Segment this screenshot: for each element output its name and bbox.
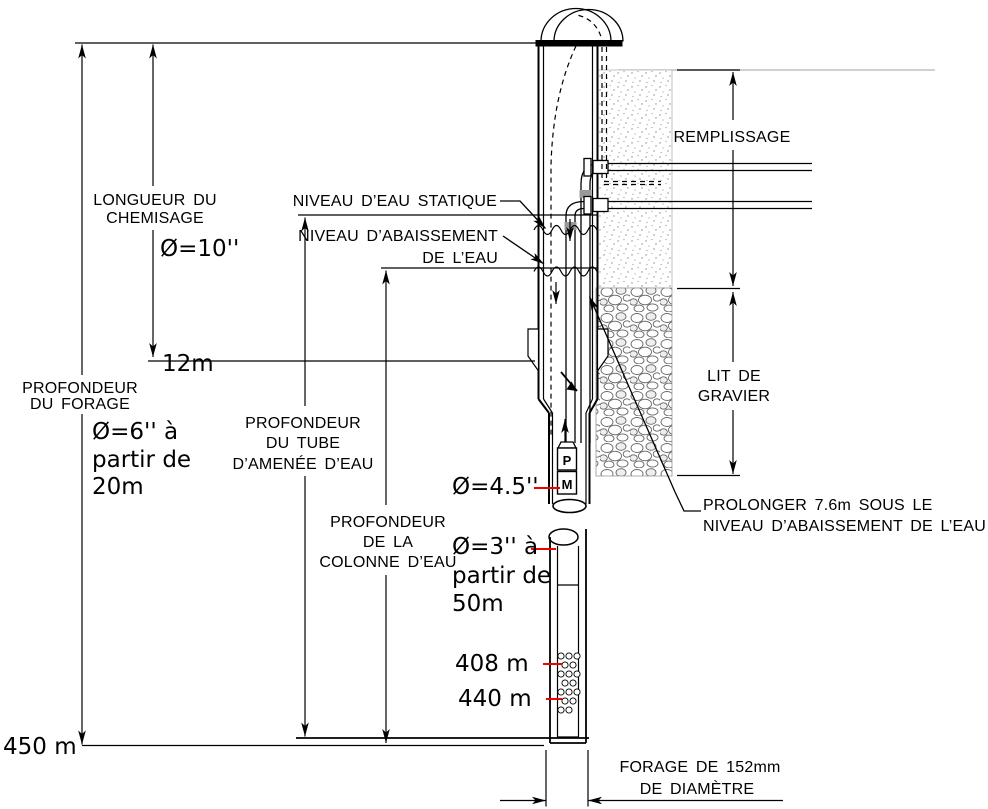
pipe-coupling bbox=[593, 161, 608, 174]
label-remplissage: REMPLISSAGE bbox=[674, 129, 791, 146]
label-profondeur-colonne-3: COLONNE D’EAU bbox=[319, 554, 456, 571]
column-pipe-mouth bbox=[549, 529, 578, 545]
backfill-region bbox=[598, 70, 672, 288]
ground-surface bbox=[75, 43, 935, 70]
centralizer-left bbox=[528, 329, 539, 371]
well-diagram: P M bbox=[0, 0, 988, 809]
note-pump-casing-diameter: Ø=4.5'' bbox=[452, 474, 539, 500]
label-forage-diametre-1: FORAGE DE 152mm bbox=[619, 759, 780, 776]
dimension-lines bbox=[82, 45, 783, 807]
label-niveau-abaissement-1: NIVEAU D’ABAISSEMENT bbox=[298, 228, 498, 245]
red-annotations: Ø=10'' 12m Ø=6'' à partir de 20m Ø=4.5''… bbox=[3, 236, 551, 760]
label-prolonger-1: PROLONGER 7.6m SOUS LE bbox=[703, 497, 932, 514]
gravel-region bbox=[596, 288, 672, 476]
note-borehole-diameter-1: Ø=6'' à bbox=[92, 419, 178, 445]
pump-casing-open-end bbox=[553, 500, 586, 513]
note-borehole-diameter-2: partir de bbox=[92, 447, 191, 473]
label-forage-diametre-2: DE DIAMÈTRE bbox=[640, 779, 755, 798]
label-lit-gravier-1: LIT DE bbox=[707, 368, 761, 385]
note-column-diameter-3: 50m bbox=[452, 591, 504, 617]
label-profondeur-colonne-1: PROFONDEUR bbox=[330, 514, 446, 531]
cable-inside bbox=[551, 46, 576, 438]
pump-head bbox=[558, 442, 576, 448]
label-profondeur-colonne-2: DE LA bbox=[363, 534, 413, 551]
pipe-flange bbox=[584, 159, 591, 177]
motor-label: M bbox=[562, 477, 573, 492]
cap-dome-arc-2 bbox=[554, 10, 623, 42]
pipe-coupling bbox=[593, 199, 608, 212]
cap-plate bbox=[536, 40, 623, 47]
pump-label: P bbox=[563, 453, 572, 468]
note-total-depth: 450 m bbox=[3, 734, 77, 760]
pipe-flange bbox=[584, 197, 591, 215]
label-profondeur-tube-3: D’AMENÉE D’EAU bbox=[233, 454, 374, 473]
label-lit-gravier-2: GRAVIER bbox=[698, 388, 770, 405]
note-chemisage-diameter: Ø=10'' bbox=[160, 236, 239, 262]
well-screen bbox=[558, 653, 580, 713]
note-chemisage-depth: 12m bbox=[162, 351, 214, 377]
well-cap bbox=[536, 9, 624, 47]
label-profondeur-tube-2: DU TUBE bbox=[266, 435, 340, 452]
label-longueur-chemisage-1: LONGUEUR DU bbox=[93, 192, 216, 209]
note-borehole-diameter-3: 20m bbox=[92, 474, 144, 500]
label-profondeur-forage-2: DU FORAGE bbox=[30, 396, 130, 413]
note-screen-top: 408 m bbox=[455, 651, 529, 677]
label-profondeur-tube-1: PROFONDEUR bbox=[245, 415, 361, 432]
label-niveau-statique: NIVEAU D’EAU STATIQUE bbox=[293, 193, 497, 210]
label-prolonger-2: NIVEAU D’ABAISSEMENT DE L’EAU bbox=[703, 518, 986, 535]
cap-dome-arc-1 bbox=[541, 9, 611, 42]
label-profondeur-forage-1: PROFONDEUR bbox=[22, 380, 138, 397]
label-niveau-abaissement-2: DE L’EAU bbox=[422, 250, 498, 267]
label-longueur-chemisage-2: CHEMISAGE bbox=[106, 210, 204, 227]
pump-assembly: P M bbox=[558, 372, 578, 494]
note-column-diameter-2: partir de bbox=[452, 563, 551, 589]
note-screen-bottom: 440 m bbox=[458, 686, 532, 712]
note-column-diameter-1: Ø=3'' à bbox=[452, 534, 538, 560]
well-diagram-page: P M bbox=[0, 0, 988, 809]
